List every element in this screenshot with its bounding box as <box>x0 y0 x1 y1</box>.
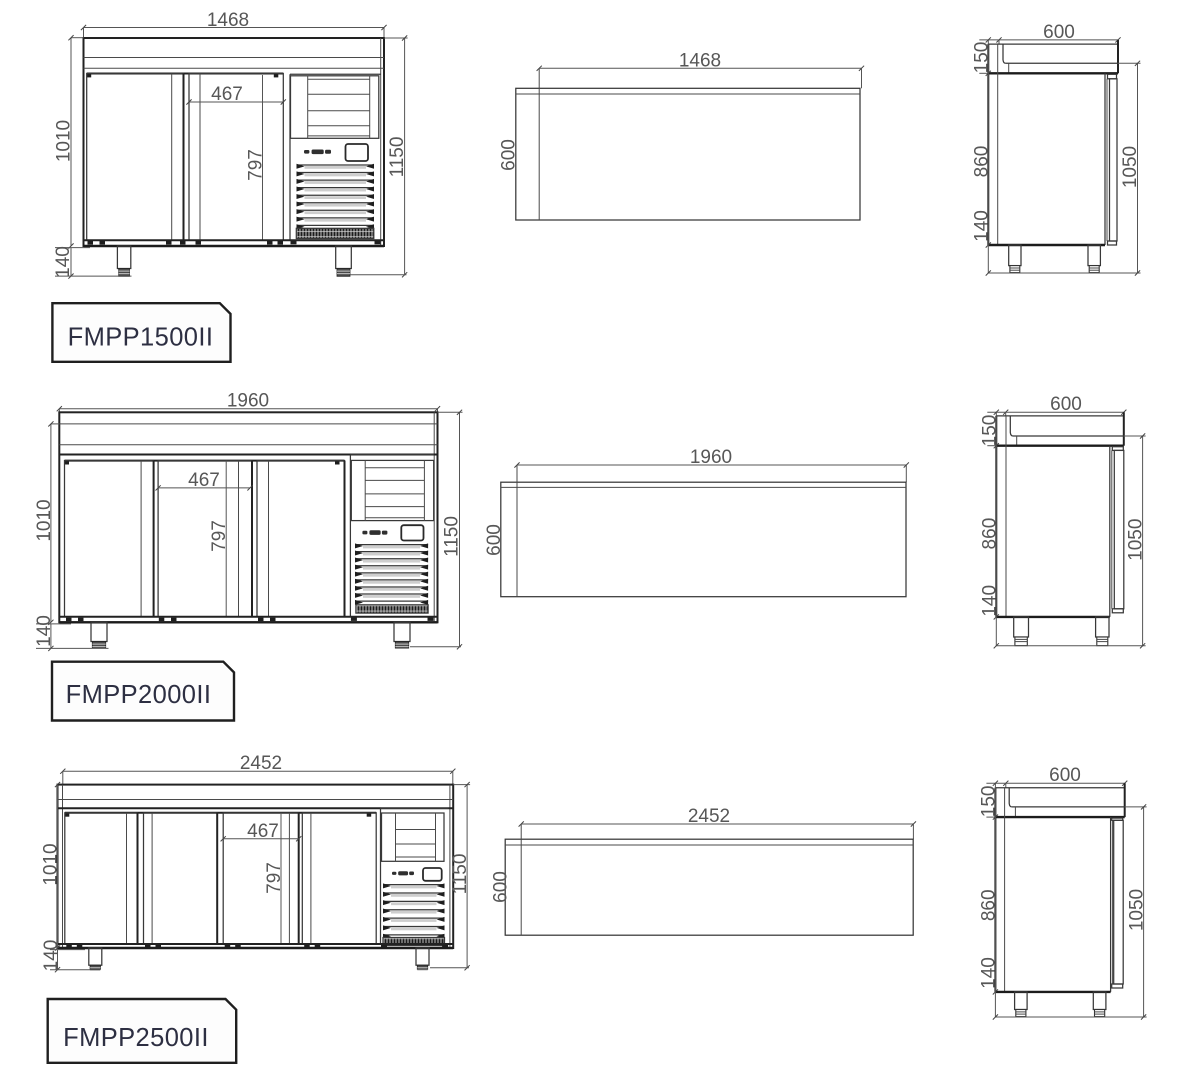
svg-text:860: 860 <box>979 518 1000 550</box>
svg-text:FMPP2000II: FMPP2000II <box>66 681 212 709</box>
svg-text:797: 797 <box>264 862 285 894</box>
svg-text:140: 140 <box>34 615 55 647</box>
svg-text:140: 140 <box>979 957 1000 989</box>
svg-text:1050: 1050 <box>1126 519 1147 561</box>
svg-text:860: 860 <box>979 889 1000 921</box>
svg-text:600: 600 <box>491 871 512 903</box>
svg-text:140: 140 <box>971 210 992 242</box>
svg-text:FMPP2500II: FMPP2500II <box>63 1024 209 1052</box>
svg-text:140: 140 <box>41 940 62 972</box>
svg-text:1010: 1010 <box>41 843 62 885</box>
svg-text:140: 140 <box>980 585 1001 617</box>
svg-text:150: 150 <box>978 786 999 818</box>
svg-text:150: 150 <box>979 415 1000 447</box>
svg-text:150: 150 <box>971 42 992 74</box>
svg-text:860: 860 <box>971 146 992 178</box>
svg-text:797: 797 <box>245 149 266 181</box>
svg-text:FMPP1500II: FMPP1500II <box>68 324 214 352</box>
svg-text:1050: 1050 <box>1127 889 1148 931</box>
svg-text:1010: 1010 <box>34 499 55 541</box>
svg-text:1150: 1150 <box>450 854 471 895</box>
svg-text:600: 600 <box>499 139 520 171</box>
svg-text:600: 600 <box>484 524 505 556</box>
